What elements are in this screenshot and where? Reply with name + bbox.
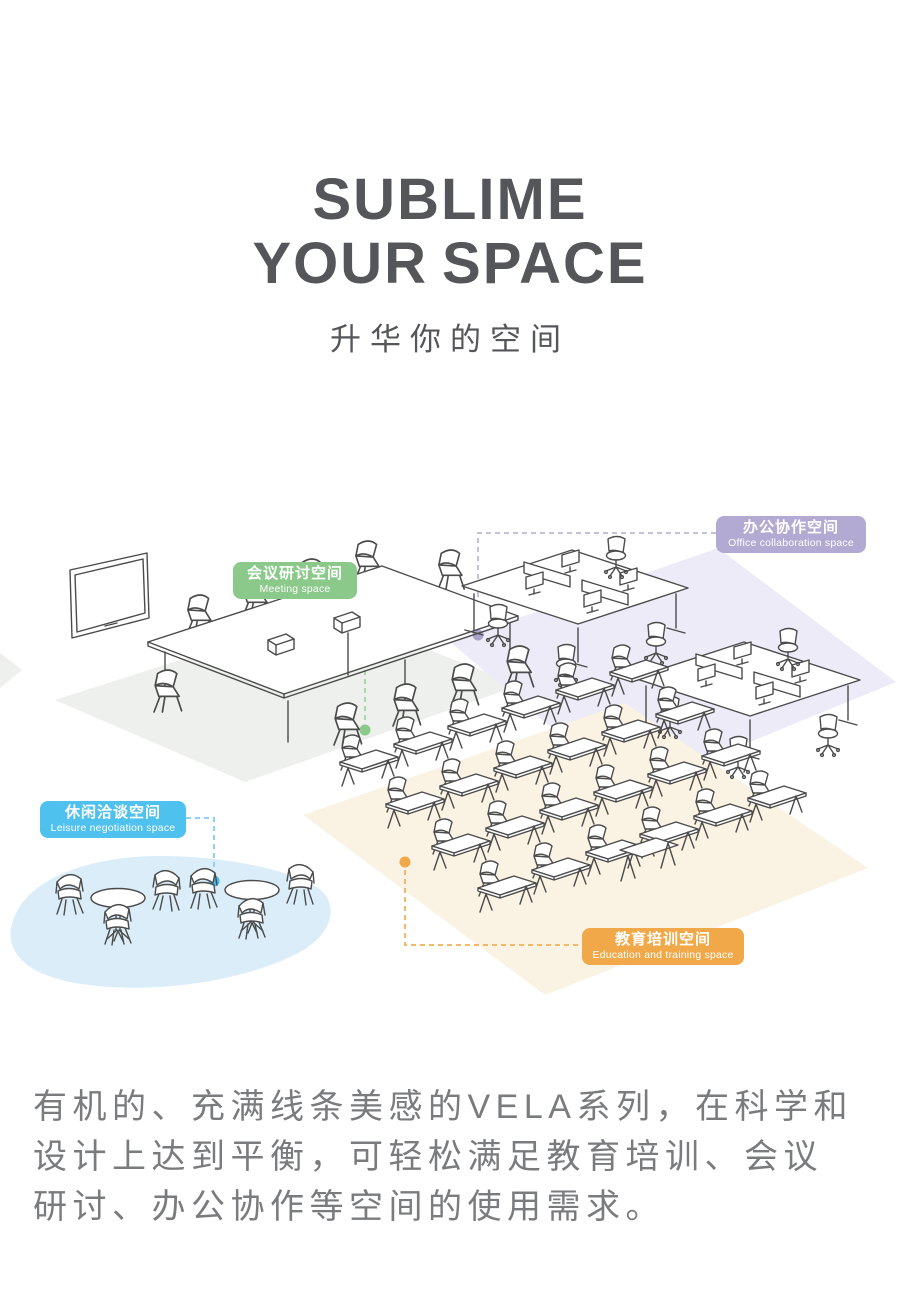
page-title: SUBLIME YOURSPACE bbox=[0, 168, 900, 296]
space-illustration bbox=[0, 490, 900, 1050]
description-text: 有机的、充满线条美感的VELA系列，在科学和 设计上达到平衡，可轻松满足教育培训… bbox=[33, 1082, 879, 1232]
meeting-dot bbox=[360, 725, 371, 736]
hero-header: SUBLIME YOURSPACE 升华你的空间 bbox=[0, 168, 900, 359]
page: SUBLIME YOURSPACE 升华你的空间 bbox=[0, 0, 900, 1304]
description-line: 研讨、办公协作等空间的使用需求。 bbox=[33, 1182, 879, 1232]
description-line: 有机的、充满线条美感的VELA系列，在科学和 bbox=[33, 1082, 879, 1132]
description-line: 设计上达到平衡，可轻松满足教育培训、会议 bbox=[33, 1132, 879, 1182]
education-dot bbox=[400, 857, 411, 868]
label-meeting-space: 会议研讨空间 Meeting space bbox=[233, 562, 357, 599]
page-subtitle: 升华你的空间 bbox=[0, 314, 900, 359]
label-leisure-negotiation-space: 休闲洽谈空间 Leisure negotiation space bbox=[40, 801, 186, 838]
label-office-collaboration-space: 办公协作空间 Office collaboration space bbox=[716, 516, 866, 553]
space-scene: 会议研讨空间 Meeting space 办公协作空间 Office colla… bbox=[0, 490, 900, 1050]
floor-fragment-left bbox=[0, 653, 22, 688]
label-education-training-space: 教育培训空间 Education and training space bbox=[582, 928, 744, 965]
